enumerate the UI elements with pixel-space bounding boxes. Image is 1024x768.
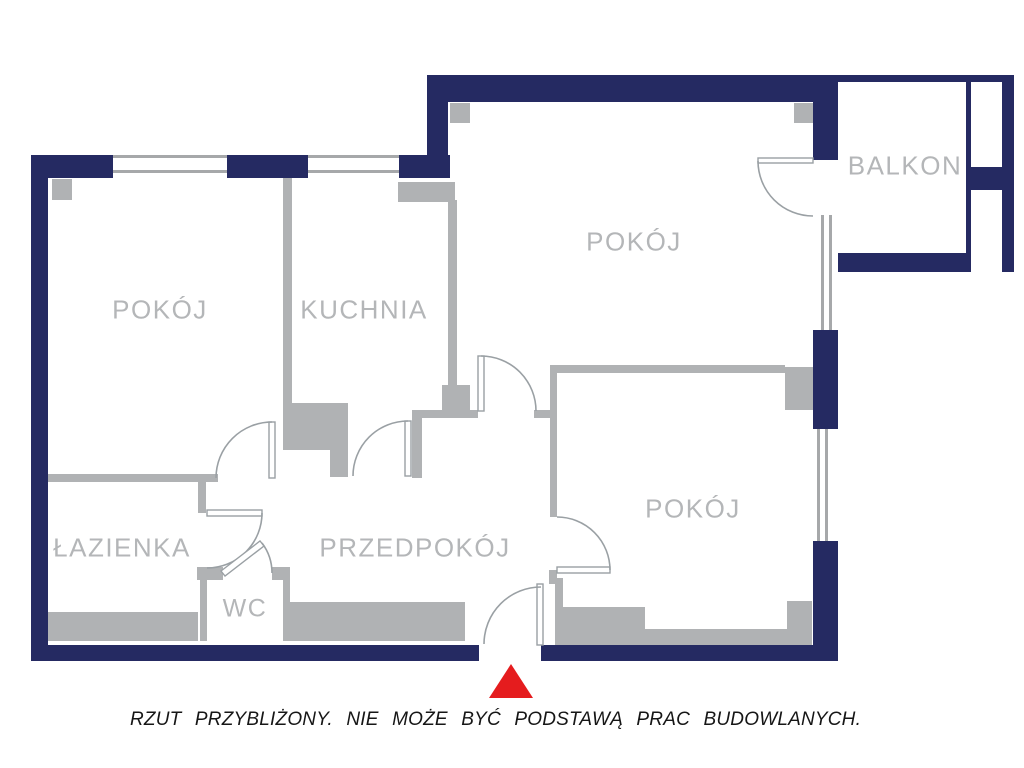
room-label-lazienka: ŁAZIENKA (53, 533, 191, 564)
wc-door-leaf (221, 541, 264, 576)
entrance-door-arc (484, 587, 541, 644)
room-bottom-door-leaf (557, 567, 610, 573)
room-label-kuchnia: KUCHNIA (300, 295, 428, 326)
bathroom-door-leaf (207, 510, 262, 516)
room-bottom-door-arc (557, 517, 610, 570)
kitchen-door-arc (353, 421, 408, 476)
floor-plan: POKÓJ KUCHNIA POKÓJ BALKON ŁAZIENKA PRZE… (0, 0, 1024, 768)
room-label-przedpokoj: PRZEDPOKÓJ (319, 533, 510, 564)
room-label-pokoj-left: POKÓJ (112, 295, 208, 326)
balcony-door-leaf (758, 158, 813, 163)
room-label-balkon: BALKON (848, 151, 963, 182)
door-layer (0, 0, 1024, 768)
room-left-door-leaf (269, 422, 275, 478)
room-top-door-arc (481, 356, 536, 411)
balcony-door-arc (758, 161, 813, 216)
room-top-door-leaf (478, 356, 484, 411)
room-left-door-arc (216, 422, 272, 478)
entrance-door-leaf (537, 584, 543, 645)
room-label-pokoj-top: POKÓJ (586, 227, 682, 258)
entrance-triangle-icon (489, 664, 533, 698)
disclaimer-caption: RZUT PRZYBLIŻONY. NIE MOŻE BYĆ PODSTAWĄ … (130, 709, 861, 731)
room-label-pokoj-bottom: POKÓJ (645, 494, 741, 525)
kitchen-door-leaf (405, 421, 411, 476)
wc-door-arc (262, 543, 272, 573)
room-label-wc: WC (223, 595, 268, 624)
